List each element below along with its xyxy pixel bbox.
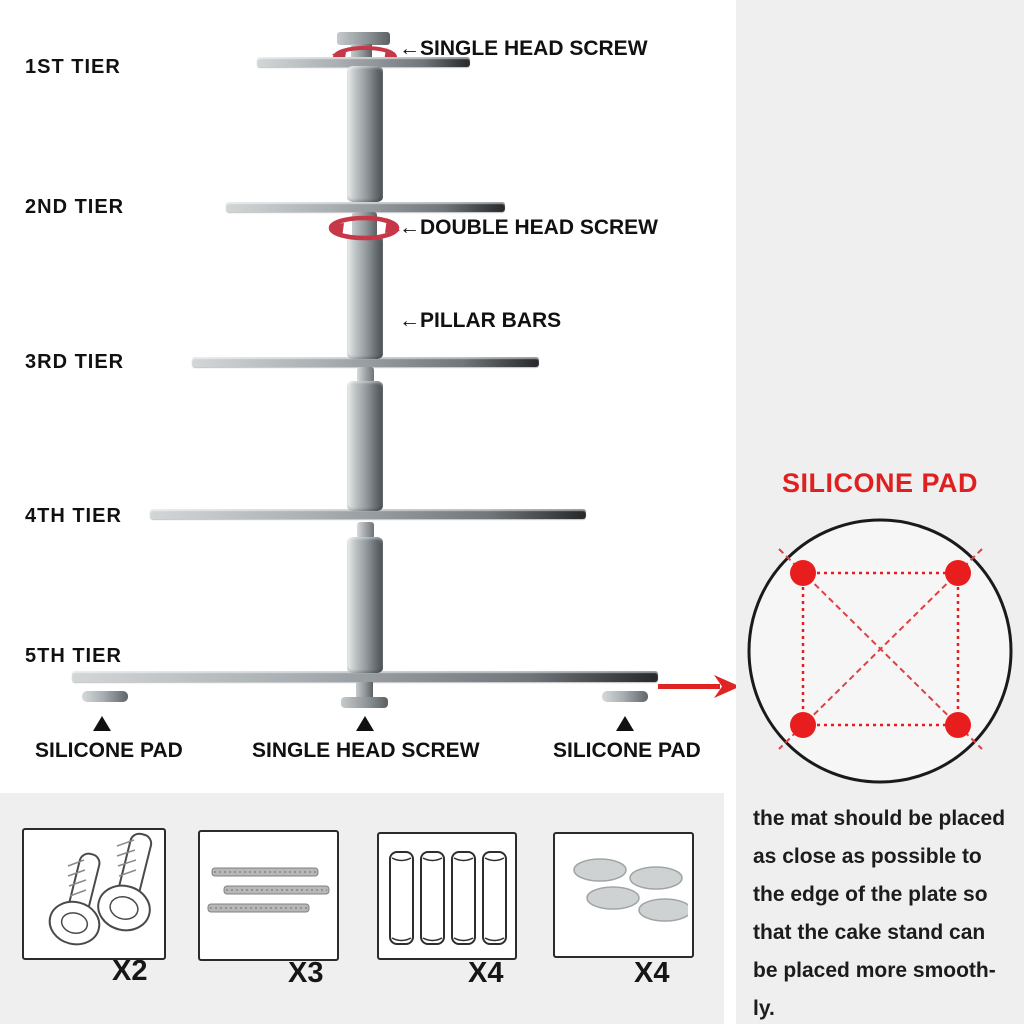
- instruction-line: as close as possible to: [753, 838, 1015, 876]
- parts-box-double-head-screw-bars: [198, 830, 339, 961]
- assembly-instruction-diagram: 1ST TIER 2ND TIER 3RD TIER 4TH TIER 5TH …: [0, 0, 1024, 1024]
- up-triangle-icon: [616, 716, 634, 731]
- parts-list-panel: X2 X3: [0, 793, 724, 1024]
- part-count-label: X4: [634, 957, 669, 990]
- tier-3-label: 3RD TIER: [25, 351, 124, 374]
- base-label-single-head-screw: SINGLE HEAD SCREW: [252, 739, 480, 763]
- instruction-line: the edge of the plate so: [753, 876, 1015, 914]
- instruction-line: ly.: [753, 990, 1015, 1024]
- parts-box-silicone-pads: [553, 832, 694, 958]
- silicone-pad-left: [82, 691, 128, 702]
- up-triangle-icon: [93, 716, 111, 731]
- parts-box-pillar-bars: [377, 832, 517, 960]
- instruction-line: be placed more smooth-: [753, 952, 1015, 990]
- part-count-label: X4: [468, 957, 503, 990]
- panel-title: SILICONE PAD: [736, 468, 1024, 499]
- rotation-arrow-icon: [326, 212, 402, 244]
- pillar-bars-callout: ←PILLAR BARS: [399, 309, 561, 333]
- base-label-silicone-pad-left: SILICONE PAD: [35, 739, 183, 763]
- pillar-bar-2: [347, 235, 383, 359]
- pillars-illustration: [379, 834, 511, 954]
- silicone-pad-detail-panel: SILICONE PAD the: [736, 0, 1024, 1024]
- tier-4-label: 4TH TIER: [25, 505, 122, 528]
- placement-instructions: the mat should be placed as close as pos…: [753, 800, 1015, 1024]
- instruction-line: the mat should be placed: [753, 800, 1015, 838]
- parts-box-single-head-screws: [22, 828, 166, 960]
- instruction-line: that the cake stand can: [753, 914, 1015, 952]
- screws-illustration: [24, 830, 160, 954]
- bars-illustration: [200, 832, 333, 955]
- part-count-label: X3: [288, 957, 323, 990]
- pillar-bar-1: [347, 66, 383, 202]
- right-arrow-icon: [656, 674, 742, 700]
- pad-placement-diagram: [742, 510, 1018, 794]
- silicone-pad-right: [602, 691, 648, 702]
- tier-2-plate: [226, 202, 505, 212]
- pillar-bar-3: [347, 381, 383, 511]
- tier-5-label: 5TH TIER: [25, 645, 122, 668]
- tier-2-label: 2ND TIER: [25, 196, 124, 219]
- bottom-single-head-screw-base: [341, 697, 388, 708]
- double-head-screw-callout: ←DOUBLE HEAD SCREW: [399, 216, 658, 240]
- base-label-silicone-pad-right: SILICONE PAD: [553, 739, 701, 763]
- pads-illustration: [555, 834, 688, 952]
- part-count-label: X2: [112, 955, 147, 988]
- pillar-bar-4: [347, 537, 383, 673]
- up-triangle-icon: [356, 716, 374, 731]
- tier-1-label: 1ST TIER: [25, 56, 121, 79]
- single-head-screw-callout: ←SINGLE HEAD SCREW: [399, 37, 648, 61]
